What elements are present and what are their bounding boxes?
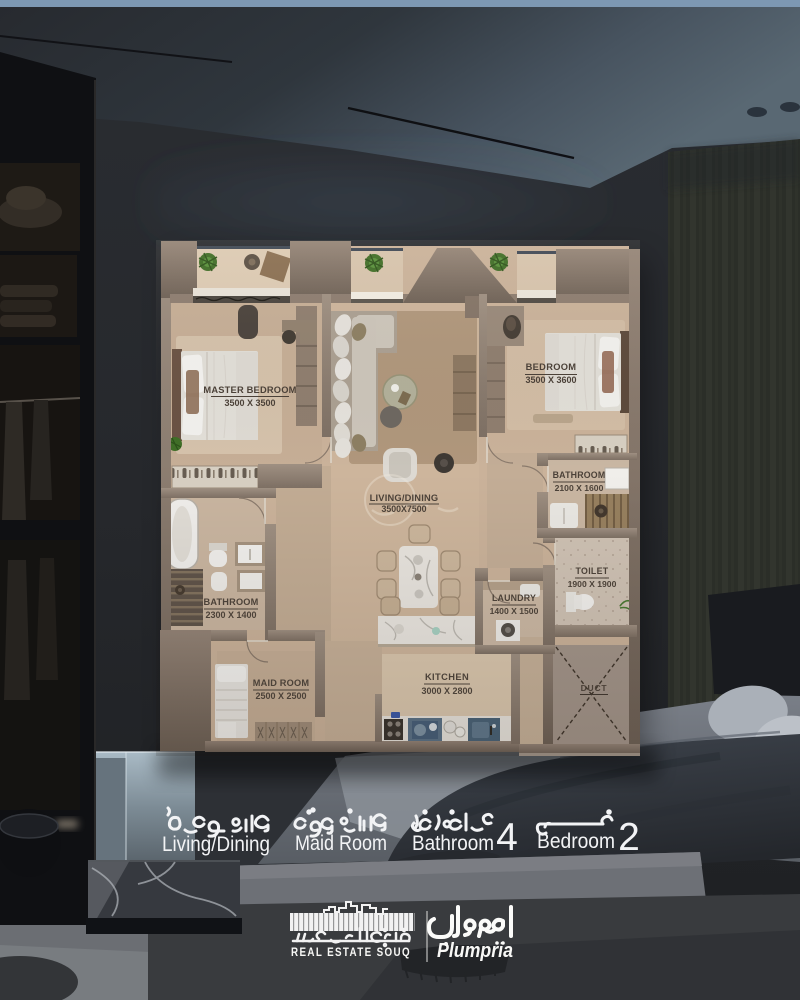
svg-text:REAL ESTATE SOUQ: REAL ESTATE SOUQ: [291, 947, 411, 959]
svg-text:KITCHEN: KITCHEN: [425, 672, 469, 682]
svg-text:TOILET: TOILET: [576, 566, 609, 576]
svg-text:LAUNDRY: LAUNDRY: [492, 593, 536, 603]
svg-text:3500 X 3500: 3500 X 3500: [224, 398, 275, 408]
svg-text:Bedroom: Bedroom: [537, 830, 615, 853]
svg-text:2: 2: [618, 816, 640, 859]
svg-text:1900 X 1900: 1900 X 1900: [568, 579, 617, 589]
svg-text:4: 4: [496, 816, 518, 859]
svg-text:2100 X 1600: 2100 X 1600: [555, 483, 604, 493]
svg-text:1400 X 1500: 1400 X 1500: [490, 606, 539, 616]
svg-text:MAID ROOM: MAID ROOM: [253, 678, 310, 688]
svg-text:Living/Dining: Living/Dining: [162, 833, 270, 856]
svg-text:MASTER BEDROOM: MASTER BEDROOM: [203, 385, 296, 395]
svg-text:Plumpria: Plumpria: [437, 940, 513, 962]
svg-text:2500 X 2500: 2500 X 2500: [255, 691, 306, 701]
svg-text:BEDROOM: BEDROOM: [526, 362, 577, 372]
svg-text:Bathroom: Bathroom: [412, 832, 494, 855]
svg-text:3500X7500: 3500X7500: [381, 504, 426, 514]
svg-text:BATHROOM: BATHROOM: [553, 470, 606, 480]
svg-text:LIVING/DINING: LIVING/DINING: [370, 493, 439, 503]
svg-text:3500 X 3600: 3500 X 3600: [525, 375, 576, 385]
svg-text:3000 X 2800: 3000 X 2800: [421, 686, 472, 696]
svg-text:Maid Room: Maid Room: [295, 832, 387, 855]
svg-text:2300 X 1400: 2300 X 1400: [205, 610, 256, 620]
svg-text:BATHROOM: BATHROOM: [203, 597, 258, 607]
svg-text:DUCT: DUCT: [581, 683, 608, 693]
